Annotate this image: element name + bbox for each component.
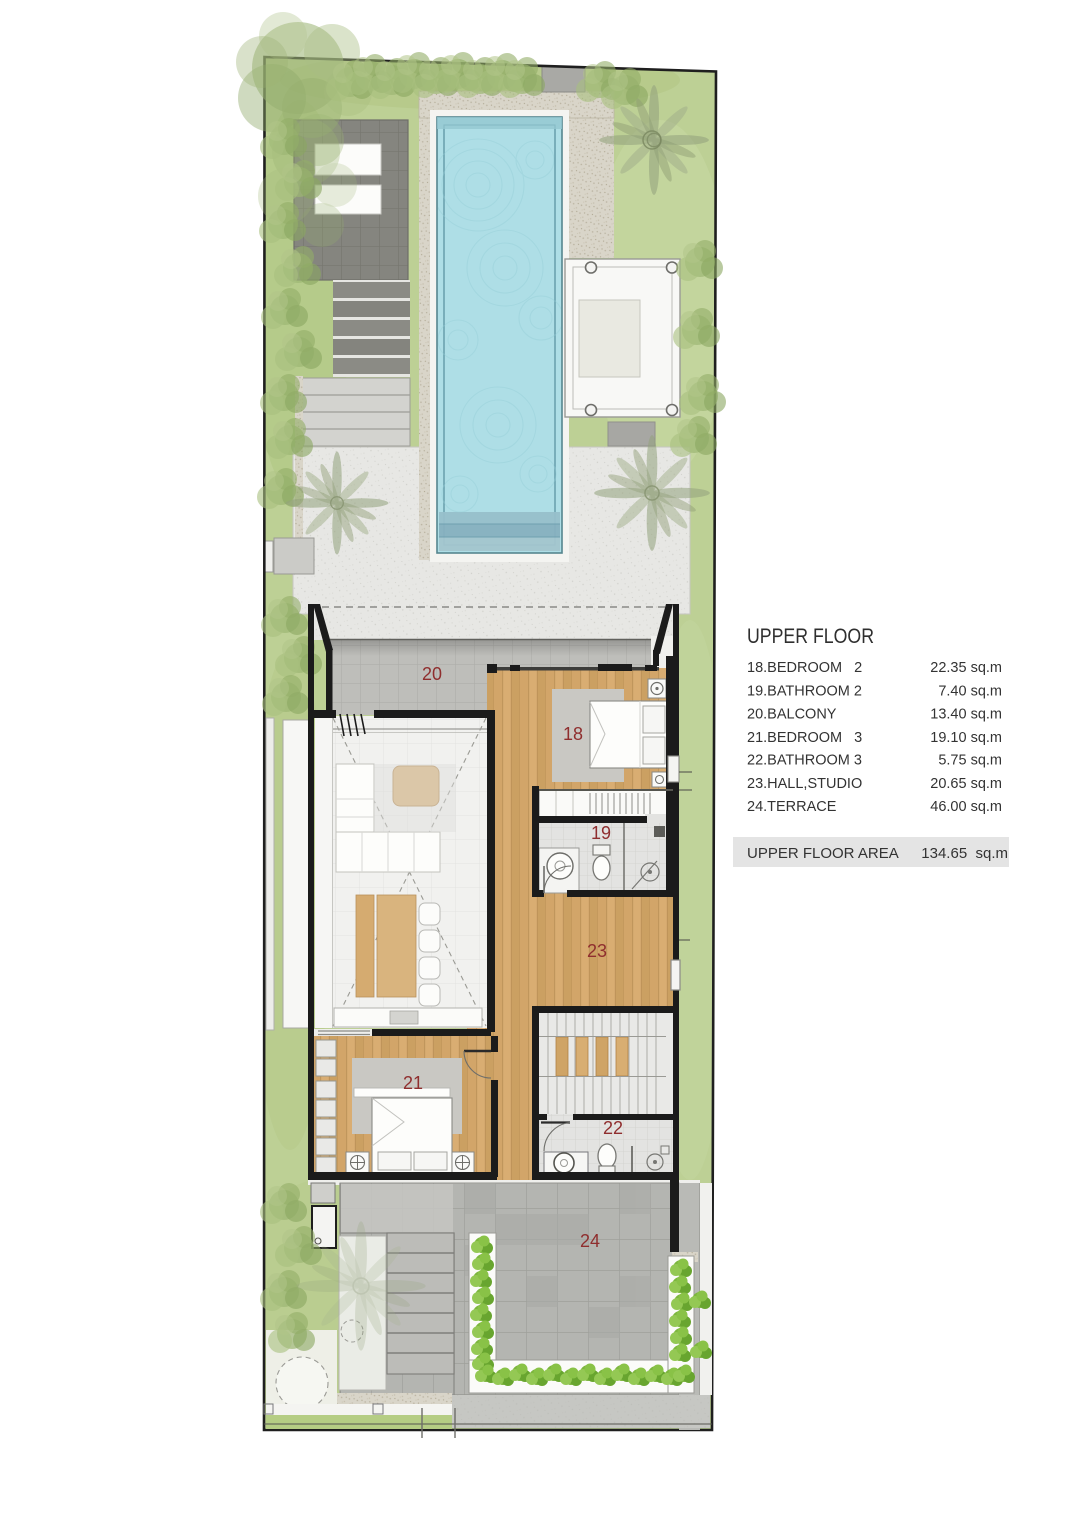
svg-text:24: 24: [580, 1231, 600, 1251]
svg-text:UPPER FLOOR: UPPER FLOOR: [747, 625, 874, 648]
svg-text:24.TERRACE: 24.TERRACE: [747, 799, 837, 815]
svg-text:UPPER FLOOR AREA: UPPER FLOOR AREA: [747, 845, 899, 862]
svg-text:18: 18: [563, 724, 583, 744]
svg-text:21.BEDROOM 3: 21.BEDROOM 3: [747, 730, 862, 746]
svg-text:13.40 sq.m: 13.40 sq.m: [930, 707, 1002, 723]
svg-text:22.BATHROOM 3: 22.BATHROOM 3: [747, 753, 862, 769]
svg-text:20.65 sq.m: 20.65 sq.m: [930, 776, 1002, 792]
svg-text:19.10 sq.m: 19.10 sq.m: [930, 730, 1002, 746]
svg-text:20.BALCONY: 20.BALCONY: [747, 707, 837, 723]
svg-text:7.40 sq.m: 7.40 sq.m: [938, 684, 1002, 700]
svg-text:46.00 sq.m: 46.00 sq.m: [930, 799, 1002, 815]
svg-text:23: 23: [587, 941, 607, 961]
svg-text:22.35 sq.m: 22.35 sq.m: [930, 660, 1002, 676]
svg-text:18.BEDROOM 2: 18.BEDROOM 2: [747, 660, 862, 676]
svg-text:21: 21: [403, 1073, 423, 1093]
svg-text:134.65 sq.m: 134.65 sq.m: [921, 845, 1008, 862]
svg-text:19.BATHROOM 2: 19.BATHROOM 2: [747, 684, 862, 700]
svg-text:20: 20: [422, 664, 442, 684]
svg-text:5.75 sq.m: 5.75 sq.m: [938, 753, 1002, 769]
svg-text:23.HALL,STUDIO: 23.HALL,STUDIO: [747, 776, 862, 792]
svg-text:22: 22: [603, 1118, 623, 1138]
svg-text:19: 19: [591, 823, 611, 843]
